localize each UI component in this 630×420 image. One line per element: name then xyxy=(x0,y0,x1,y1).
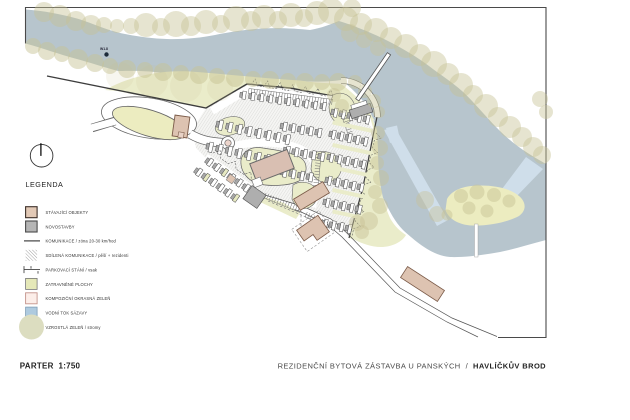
svg-text:STÁVAJÍCÍ OBJEKTY: STÁVAJÍCÍ OBJEKTY xyxy=(46,210,89,215)
svg-text:LEGENDA: LEGENDA xyxy=(26,180,64,189)
svg-text:VODNÍ TOK SÁZAVY: VODNÍ TOK SÁZAVY xyxy=(46,310,88,315)
svg-text:SDÍLENÁ KOMUNIKACE / pěší + re: SDÍLENÁ KOMUNIKACE / pěší + rezidenti xyxy=(46,253,129,258)
svg-text:KOMPOZIČNÍ OKRASNÁ ZELEŇ: KOMPOZIČNÍ OKRASNÁ ZELEŇ xyxy=(46,296,111,301)
svg-text:KOMUNIKACE / zóna 20-30 km/hod: KOMUNIKACE / zóna 20-30 km/hod xyxy=(46,239,117,244)
svg-text:W1.8: W1.8 xyxy=(100,47,108,51)
svg-text:PARKOVACÍ STÁNÍ / vsak: PARKOVACÍ STÁNÍ / vsak xyxy=(46,267,98,272)
svg-text:NOVOSTAVBY: NOVOSTAVBY xyxy=(46,224,75,229)
svg-text:REZIDENČNÍ BYTOVÁ ZÁSTAVBA U P: REZIDENČNÍ BYTOVÁ ZÁSTAVBA U PANSKÝCH / … xyxy=(278,361,547,371)
svg-text:PARTER 1:750: PARTER 1:750 xyxy=(20,361,81,370)
svg-text:ZATRAVNĚNÉ PLOCHY: ZATRAVNĚNÉ PLOCHY xyxy=(46,282,94,287)
svg-text:VZROSTLÁ ZELEŇ / stromy: VZROSTLÁ ZELEŇ / stromy xyxy=(46,325,102,330)
